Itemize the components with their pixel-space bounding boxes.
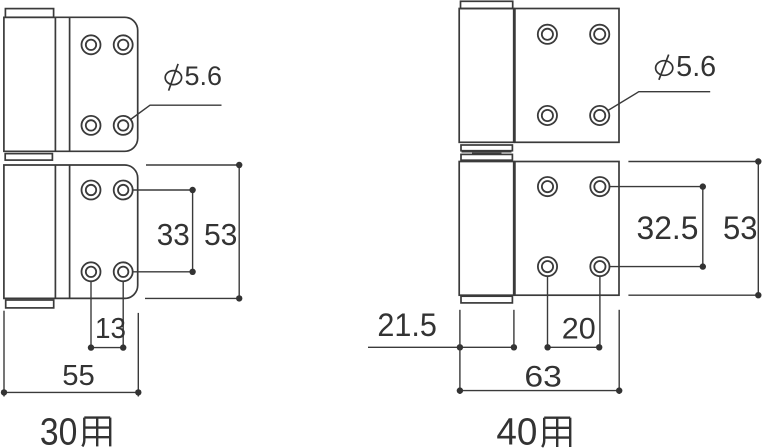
svg-text:32.5: 32.5 [637, 210, 699, 246]
svg-text:40: 40 [496, 412, 537, 448]
svg-text:5.6: 5.6 [676, 51, 716, 83]
svg-text:21.5: 21.5 [377, 307, 437, 343]
svg-text:55: 55 [62, 360, 95, 392]
svg-text:5.6: 5.6 [185, 61, 223, 91]
svg-text:13: 13 [95, 313, 126, 345]
svg-text:20: 20 [562, 313, 596, 346]
svg-text:63: 63 [524, 360, 562, 393]
svg-text:33: 33 [157, 217, 190, 252]
svg-text:30: 30 [40, 412, 78, 448]
svg-text:53: 53 [723, 210, 758, 246]
svg-text:53: 53 [204, 217, 238, 252]
